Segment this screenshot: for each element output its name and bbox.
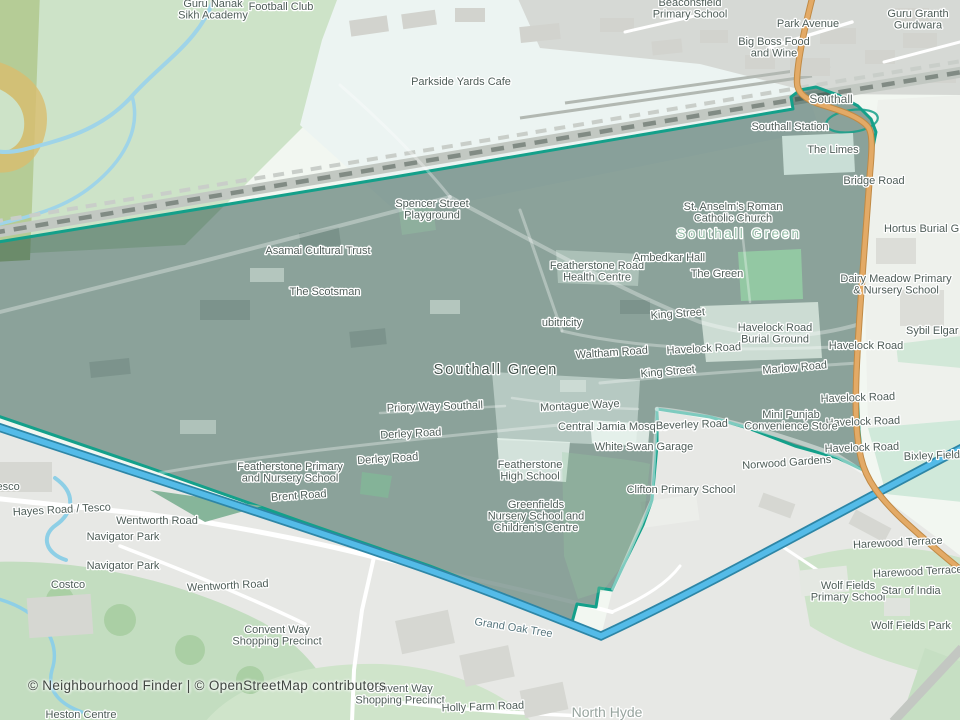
st-anselms-church-label: St. Anselm's RomanCatholic Church [684, 201, 783, 225]
southall-place-label: Southall [809, 92, 852, 106]
wolf-fields-primary-school-label: Wolf FieldsPrimary School [811, 580, 886, 604]
costco-label: Costco [51, 579, 85, 591]
the-limes-label: The Limes [807, 144, 859, 156]
southall-green-main-label: Southall Green [434, 362, 559, 378]
asamai-cultural-trust-label: Asamai Cultural Trust [265, 245, 370, 257]
guru-granth-gurdwara-label: Guru GranthGurdwara [887, 8, 948, 32]
tesco-clipped-label: Tesco [0, 481, 20, 493]
sybil-elgar-school-label: Sybil Elgar School [906, 325, 960, 337]
featherstone-primary-school-label: Featherstone Primaryand Nursery School [237, 461, 343, 485]
star-of-india-label: Star of India [881, 585, 941, 597]
southall-station-label: Southall Station [751, 121, 828, 133]
parkside-yards-cafe-label: Parkside Yards Cafe [411, 76, 511, 88]
football-club-label: Football Club [249, 1, 314, 13]
havelock-road-e1-label: Havelock Road [829, 340, 904, 352]
white-swan-garage-label: White Swan Garage [595, 441, 693, 453]
spencer-street-playground-label: Spencer StreetPlayground [395, 198, 468, 222]
north-hyde-label: North Hyde [572, 704, 643, 720]
park-avenue-label: Park Avenue [777, 18, 839, 30]
the-green-label: The Green [691, 268, 744, 280]
featherstone-high-school-label: FeatherstoneHigh School [498, 459, 563, 483]
navigator-park-2-label: Navigator Park [87, 560, 160, 572]
southall-green-area-label: Southall Green [676, 226, 801, 241]
central-jamia-mosque-label: Central Jamia Mosque [558, 421, 668, 433]
attribution: © Neighbourhood Finder | © OpenStreetMap… [28, 678, 386, 693]
map-canvas[interactable]: Guru NanakSikh AcademyFootball ClubParks… [0, 0, 960, 720]
beaconsfield-primary-school-label: BeaconsfieldPrimary School [653, 0, 728, 21]
wolf-fields-park-label: Wolf Fields Park [871, 620, 951, 632]
the-scotsman-label: The Scotsman [290, 286, 361, 298]
beverley-road-label: Beverley Road [656, 418, 729, 433]
bixley-field-label: Bixley Field [904, 449, 960, 463]
dairy-meadow-school-label: Dairy Meadow Primary& Nursery School [840, 273, 952, 297]
havelock-burial-ground-label: Havelock RoadBurial Ground [738, 322, 813, 346]
map-image: Guru NanakSikh AcademyFootball ClubParks… [0, 0, 960, 720]
heston-centre-label: Heston Centre [46, 709, 117, 720]
guru-nanak-academy-label: Guru NanakSikh Academy [178, 0, 248, 22]
clifton-primary-school-label: Clifton Primary School [627, 484, 736, 496]
hortus-burial-ground-label: Hortus Burial Ground [884, 223, 960, 235]
bridge-road-label: Bridge Road [843, 175, 904, 187]
wentworth-road-north-label: Wentworth Road [116, 515, 198, 527]
featherstone-health-centre-label: Featherstone RoadHealth Centre [550, 260, 644, 284]
ambedkar-hall-label: Ambedkar Hall [633, 252, 705, 264]
convent-way-precinct-north-label: Convent WayShopping Precinct [232, 624, 321, 648]
navigator-park-1-label: Navigator Park [87, 531, 160, 543]
ubitricity-label: ubitricity [542, 317, 583, 329]
